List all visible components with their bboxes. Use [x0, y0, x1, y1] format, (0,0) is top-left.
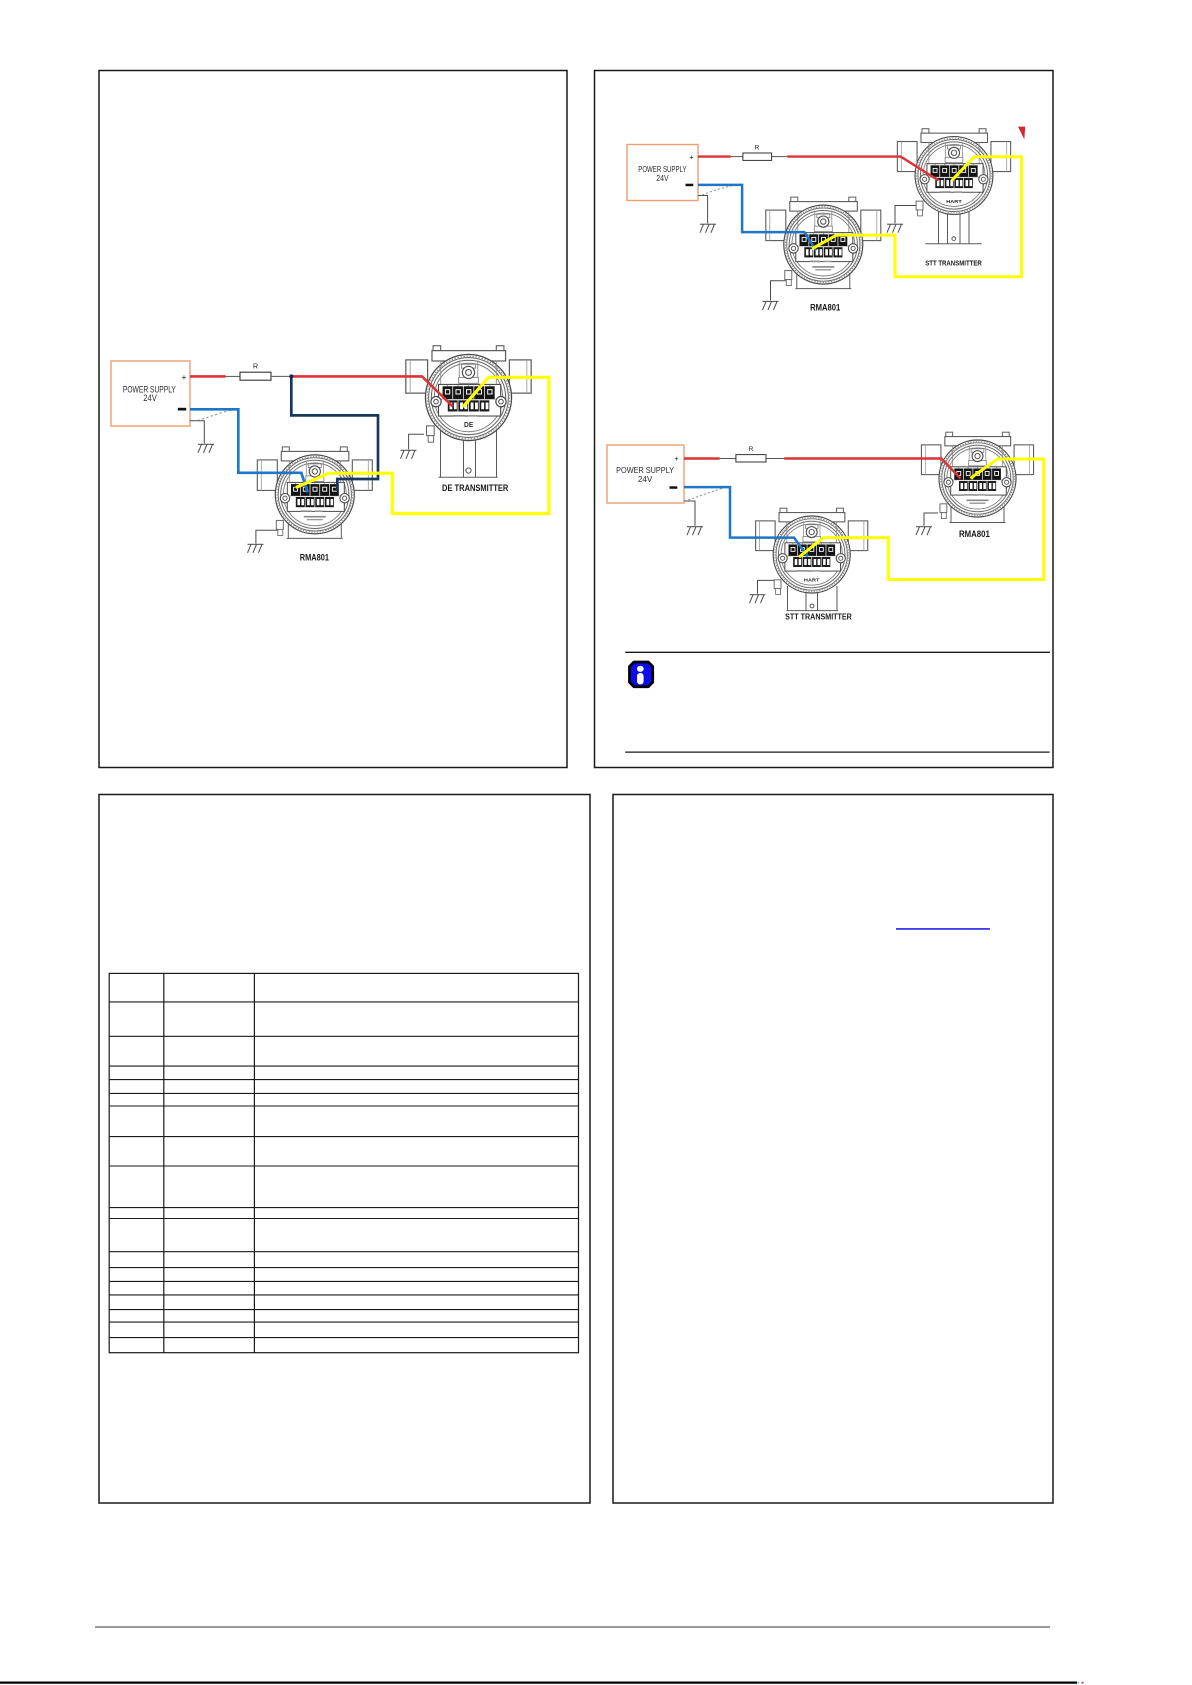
svg-text:RMA801: RMA801	[300, 553, 330, 564]
svg-text:DE TRANSMITTER: DE TRANSMITTER	[442, 483, 508, 494]
svg-text:STT TRANSMITTER: STT TRANSMITTER	[925, 258, 982, 267]
svg-text:DE: DE	[464, 422, 474, 429]
svg-text:R: R	[749, 446, 754, 453]
svg-text:24V: 24V	[656, 174, 669, 183]
svg-text:HART: HART	[946, 199, 962, 205]
svg-text:+: +	[689, 153, 694, 162]
svg-text:RMA801: RMA801	[959, 529, 990, 540]
svg-text:RMA801: RMA801	[810, 303, 841, 314]
svg-text:24V: 24V	[638, 474, 653, 484]
svg-text:+: +	[182, 373, 187, 382]
svg-text:STT TRANSMITTER: STT TRANSMITTER	[785, 611, 852, 621]
svg-text:+: +	[674, 454, 679, 463]
svg-text:POWER SUPPLY: POWER SUPPLY	[638, 165, 687, 174]
svg-text:HART: HART	[804, 578, 820, 584]
svg-text:R: R	[755, 145, 760, 152]
svg-text:R: R	[253, 364, 258, 371]
svg-text:24V: 24V	[143, 393, 157, 403]
